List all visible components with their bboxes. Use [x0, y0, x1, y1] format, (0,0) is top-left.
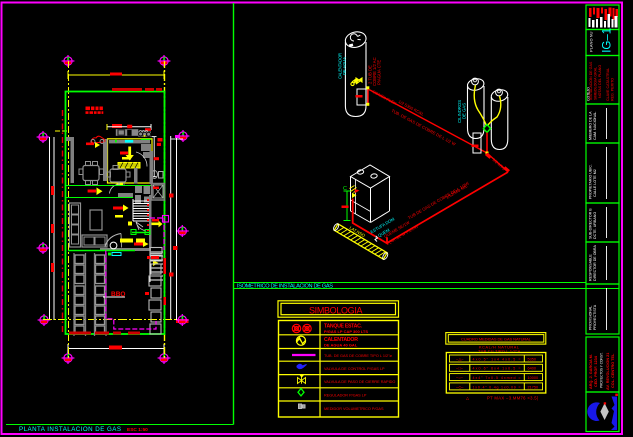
svg-text:PROVISIONAL: PROVISIONAL — [589, 306, 593, 330]
svg-text:IG–1: IG–1 — [602, 28, 614, 53]
svg-text:10000: 10000 — [528, 376, 539, 380]
svg-text:COL. CENTRO TEL: COL. CENTRO TEL — [611, 353, 615, 388]
svg-text:CALLE LOTE M2: CALLE LOTE M2 — [593, 169, 597, 197]
svg-text:−○−: −○− — [456, 375, 464, 380]
svg-text:△: △ — [466, 395, 470, 400]
svg-text:CED. PROF. 1234: CED. PROF. 1234 — [594, 355, 598, 387]
svg-text:PROYECTISTA: PROYECTISTA — [593, 304, 597, 330]
svg-text:DE AGUA: DE AGUA — [342, 57, 347, 75]
svg-text:REG. PERITO: REG. PERITO — [611, 78, 615, 101]
svg-text:RESPONSABLE: RESPONSABLE — [589, 254, 593, 281]
svg-text:DE GAS: DE GAS — [462, 103, 467, 119]
svg-text:COTEJO: COTEJO — [587, 87, 591, 101]
svg-text:4x0.6" 6x4 1x0.5 =: 4x0.6" 6x4 1x0.5 = — [473, 367, 521, 371]
svg-text:C: C — [343, 186, 347, 192]
svg-text:ESC 1:50: ESC 1:50 — [127, 427, 148, 433]
svg-text:PROYECTOS Y CONST.: PROYECTOS Y CONST. — [600, 352, 604, 388]
svg-text:AV. REVOLUCION 21: AV. REVOLUCION 21 — [606, 353, 610, 390]
svg-text:SIMBOLOGIA: SIMBOLOGIA — [309, 306, 363, 316]
svg-text:REGULADOR P/GAS LP: REGULADOR P/GAS LP — [324, 394, 367, 398]
svg-text:1/2 MTS: 1/2 MTS — [491, 157, 506, 171]
svg-text:TUB. DE GAS DE COBRE TIPO L 1/: TUB. DE GAS DE COBRE TIPO L 1/2"ø — [324, 354, 392, 358]
svg-text:CUADRO MEDIDAS DE GAS NATURAL: CUADRO MEDIDAS DE GAS NATURAL — [461, 336, 532, 341]
svg-text:CONEX FLEX: CONEX FLEX — [372, 89, 398, 106]
svg-text:PLANO NU: PLANO NU — [589, 31, 594, 52]
svg-text:6400: 6400 — [528, 367, 536, 371]
svg-text:DE AGUA 40 GAL: DE AGUA 40 GAL — [324, 343, 358, 348]
svg-text:VALVULA DE PASO DE CIERRE RAPI: VALVULA DE PASO DE CIERRE RAPIDO — [324, 380, 395, 384]
svg-text:5350: 5350 — [528, 357, 536, 361]
svg-text:−□−: −□− — [456, 366, 464, 371]
svg-text:−△−: −△− — [456, 356, 464, 361]
svg-text:CLAVE CATASTRAL: CLAVE CATASTRAL — [606, 68, 610, 101]
svg-text:P/AGUA CTE: P/AGUA CTE — [377, 60, 382, 85]
svg-text:PLANTA INSTALACION DE GAS: PLANTA INSTALACION DE GAS — [19, 426, 121, 433]
svg-text:4x4" 7x0.5 4xmed =: 4x4" 7x0.5 4xmed = — [473, 376, 521, 380]
svg-text:SUB-DIRECTOR B: SUB-DIRECTOR B — [589, 208, 593, 239]
svg-text:21750: 21750 — [528, 385, 539, 389]
svg-text:1x0.4" 0.4g 1x0.09 =: 1x0.4" 0.4g 1x0.09 = — [473, 385, 521, 389]
svg-text:DIRECTOR DE OBRA: DIRECTOR DE OBRA — [593, 245, 597, 281]
svg-text:CAM. NACIONAL: CAM. NACIONAL — [593, 112, 597, 140]
svg-text:DCTE. URBANO: DCTE. URBANO — [593, 212, 597, 239]
svg-text:ARQ. J. GARCIA M.: ARQ. J. GARCIA M. — [589, 354, 593, 389]
svg-text:SIMBOLOGIA GRAL: SIMBOLOGIA GRAL — [594, 67, 598, 100]
svg-text:PT MAX −3.MM76 <3.5|: PT MAX −3.MM76 <3.5| — [487, 395, 538, 400]
svg-text:MIEMBRO DE LA: MIEMBRO DE LA — [589, 111, 593, 140]
svg-text:MEDIDOR VOLUMETRICO P/GAS: MEDIDOR VOLUMETRICO P/GAS — [324, 407, 384, 411]
svg-text:NOTAS DEL PLANO: NOTAS DEL PLANO — [598, 65, 602, 98]
svg-text:4x0.5" 1x4 4x0.5 =: 4x0.5" 1x4 4x0.5 = — [473, 357, 521, 361]
svg-text:−◇−: −◇− — [456, 384, 464, 389]
svg-text:P/GAS LP CAP 300 LTS: P/GAS LP CAP 300 LTS — [324, 329, 368, 334]
svg-text:ISOMETRICO DE INSTALACION DE G: ISOMETRICO DE INSTALACION DE GAS — [237, 283, 333, 289]
svg-text:PROPIETARIO UBIC.: PROPIETARIO UBIC. — [589, 164, 593, 199]
svg-text:VALVULA DE CONTROL P/GAS LP: VALVULA DE CONTROL P/GAS LP — [324, 367, 385, 371]
